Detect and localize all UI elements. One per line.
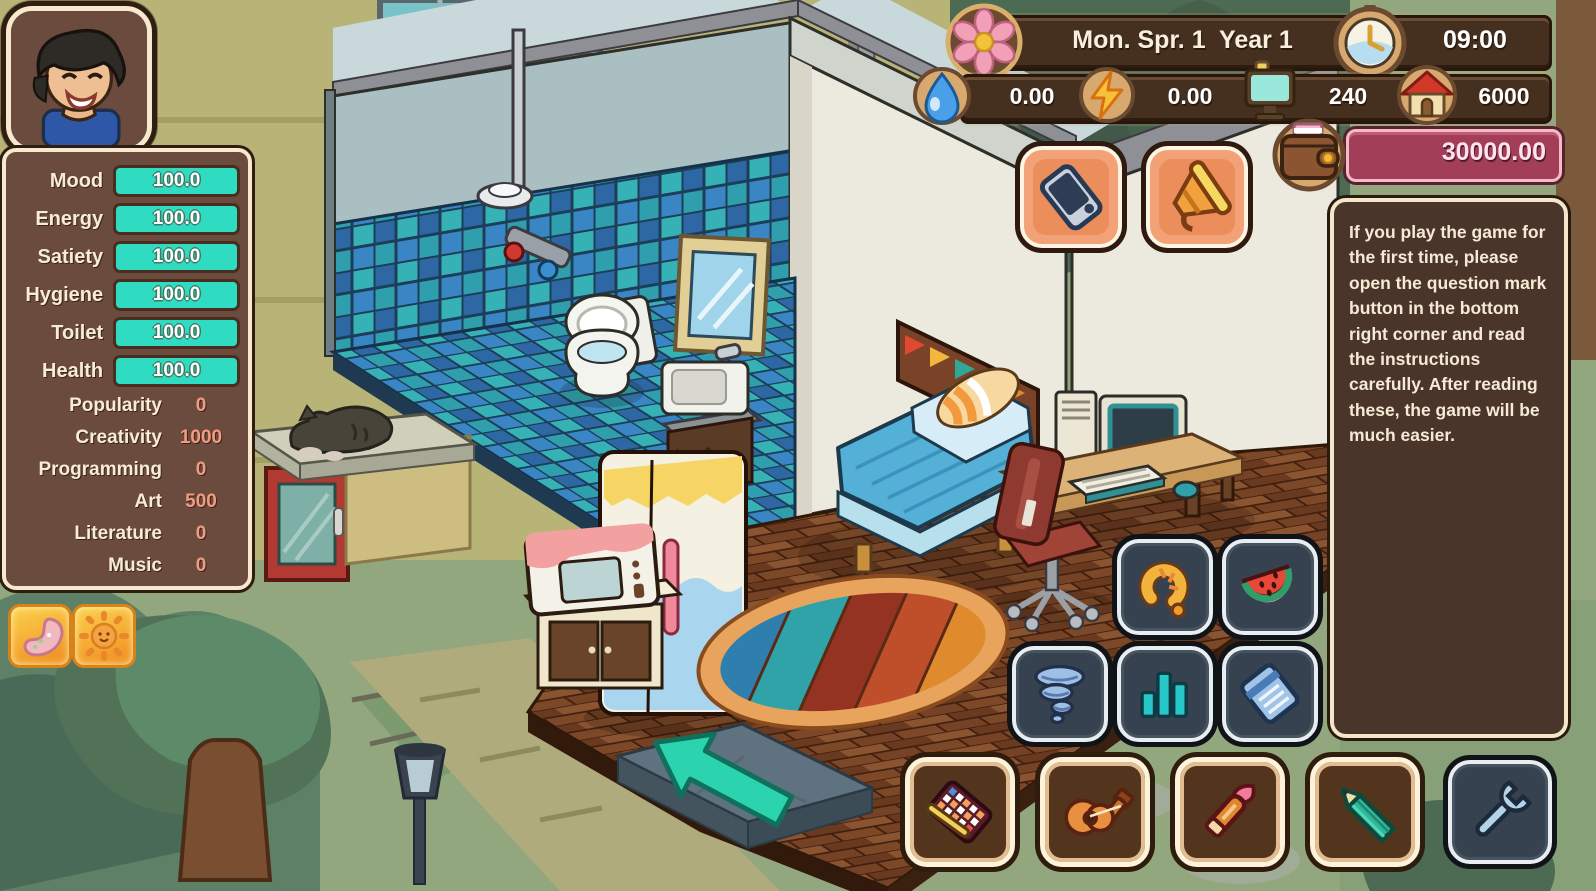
- stat-row-mood: Mood 100.0: [12, 162, 240, 200]
- painting-button[interactable]: [1175, 757, 1285, 867]
- skill-row-literature: Literature 0: [12, 518, 240, 550]
- skill-value: 1000: [162, 427, 240, 449]
- stat-row-hygiene: Hygiene 100.0: [12, 276, 240, 314]
- time-label: 09:00: [1412, 15, 1538, 65]
- pencil-icon: [1329, 776, 1401, 848]
- skill-value: 500: [162, 491, 240, 513]
- skill-value: 0: [162, 523, 240, 545]
- house-rent-icon: [1396, 64, 1458, 126]
- stat-label: Toilet: [12, 322, 103, 345]
- stat-value: 100.0: [113, 165, 240, 197]
- watermelon-button[interactable]: [1222, 539, 1318, 635]
- computer-bill: 240: [1302, 74, 1394, 118]
- stat-label: Mood: [12, 170, 103, 193]
- skill-label: Literature: [12, 523, 162, 545]
- megaphone-icon: [1163, 163, 1231, 231]
- stat-value: 100.0: [113, 241, 240, 273]
- sun-buff-icon: [75, 607, 133, 665]
- help-text: If you play the game for the first time,…: [1349, 220, 1549, 448]
- skill-row-popularity: Popularity 0: [12, 390, 240, 422]
- notebook-button[interactable]: [1222, 646, 1318, 742]
- house-rent: 6000: [1458, 74, 1550, 118]
- sun-buff[interactable]: [72, 604, 136, 668]
- keyboard-icon: [924, 776, 996, 848]
- computer-bill-icon: [1236, 60, 1300, 124]
- stats-panel: Mood 100.0 Energy 100.0 Satiety 100.0 Hy…: [2, 148, 252, 590]
- hook-button[interactable]: [1117, 539, 1213, 635]
- stat-value: 100.0: [113, 317, 240, 349]
- stat-label: Health: [12, 360, 103, 383]
- water-drop-icon: [912, 66, 972, 126]
- paintbrush-icon: [1194, 776, 1266, 848]
- skill-value: 0: [162, 459, 240, 481]
- pencil-button[interactable]: [1310, 757, 1420, 867]
- skill-row-programming: Programming 0: [12, 454, 240, 486]
- guitar-button[interactable]: [1040, 757, 1150, 867]
- stat-row-energy: Energy 100.0: [12, 200, 240, 238]
- skill-label: Popularity: [12, 395, 162, 417]
- tornado-button[interactable]: [1012, 646, 1108, 742]
- mirror[interactable]: [675, 236, 769, 354]
- skill-label: Music: [12, 555, 162, 577]
- skill-value: 0: [162, 395, 240, 417]
- skill-label: Creativity: [12, 427, 162, 449]
- date-label: Mon. Spr. 1 Year 1: [1035, 15, 1330, 65]
- stat-row-health: Health 100.0: [12, 352, 240, 390]
- skill-label: Art: [12, 491, 162, 513]
- electricity-bill: 0.00: [1136, 74, 1244, 118]
- stat-value: 100.0: [113, 355, 240, 387]
- hook-icon: [1133, 555, 1196, 618]
- guitar-icon: [1059, 776, 1131, 848]
- stat-row-satiety: Satiety 100.0: [12, 238, 240, 276]
- stat-label: Energy: [12, 208, 103, 231]
- skill-row-music: Music 0: [12, 550, 240, 582]
- stat-row-toilet: Toilet 100.0: [12, 314, 240, 352]
- help-panel: If you play the game for the first time,…: [1330, 198, 1568, 738]
- stat-value: 100.0: [113, 203, 240, 235]
- stat-value: 100.0: [113, 279, 240, 311]
- lightning-icon: [1078, 66, 1136, 124]
- stomach-buff[interactable]: [8, 604, 72, 668]
- stomach-buff-icon: [11, 607, 69, 665]
- stat-label: Hygiene: [12, 284, 103, 307]
- skill-label: Programming: [12, 459, 162, 481]
- skill-value: 0: [162, 555, 240, 577]
- phone-icon: [1037, 163, 1105, 231]
- money-value: 30000.00: [1360, 129, 1546, 176]
- wrench-button[interactable]: [1448, 760, 1552, 864]
- tornado-icon: [1028, 662, 1091, 725]
- stat-label: Satiety: [12, 246, 103, 269]
- watermelon-icon: [1238, 555, 1301, 618]
- statistics-button[interactable]: [1117, 646, 1213, 742]
- avatar[interactable]: [6, 6, 152, 152]
- skill-row-art: Art 500: [12, 486, 240, 518]
- skill-row-creativity: Creativity 1000: [12, 422, 240, 454]
- megaphone-button[interactable]: [1146, 146, 1248, 248]
- wallet-icon: [1272, 118, 1346, 192]
- bar-chart-icon: [1133, 662, 1196, 725]
- notebook-icon: [1238, 662, 1301, 725]
- microwave[interactable]: [525, 522, 660, 615]
- phone-button[interactable]: [1020, 146, 1122, 248]
- toilet[interactable]: [560, 295, 658, 408]
- water-bill: 0.00: [978, 74, 1086, 118]
- wrench-icon: [1465, 777, 1534, 846]
- keyboard-writing-button[interactable]: [905, 757, 1015, 867]
